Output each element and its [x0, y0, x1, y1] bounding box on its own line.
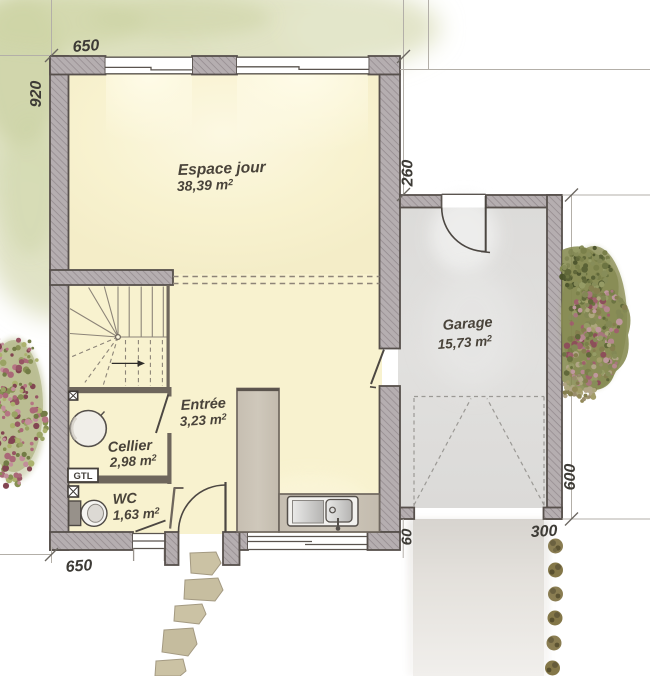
svg-text:920: 920: [28, 81, 45, 108]
svg-text:60: 60: [399, 528, 416, 545]
svg-text:3,23 m2: 3,23 m2: [179, 412, 227, 429]
svg-text:38,39 m2: 38,39 m2: [177, 176, 234, 194]
svg-text:GTL: GTL: [74, 471, 93, 482]
svg-text:WC: WC: [112, 491, 137, 508]
svg-text:650: 650: [72, 37, 100, 56]
svg-text:260: 260: [400, 160, 417, 188]
svg-text:300: 300: [530, 523, 558, 541]
svg-text:600: 600: [562, 464, 579, 491]
svg-text:1,63 m2: 1,63 m2: [112, 506, 160, 523]
svg-text:650: 650: [65, 557, 93, 576]
svg-text:2,98 m2: 2,98 m2: [108, 453, 157, 470]
